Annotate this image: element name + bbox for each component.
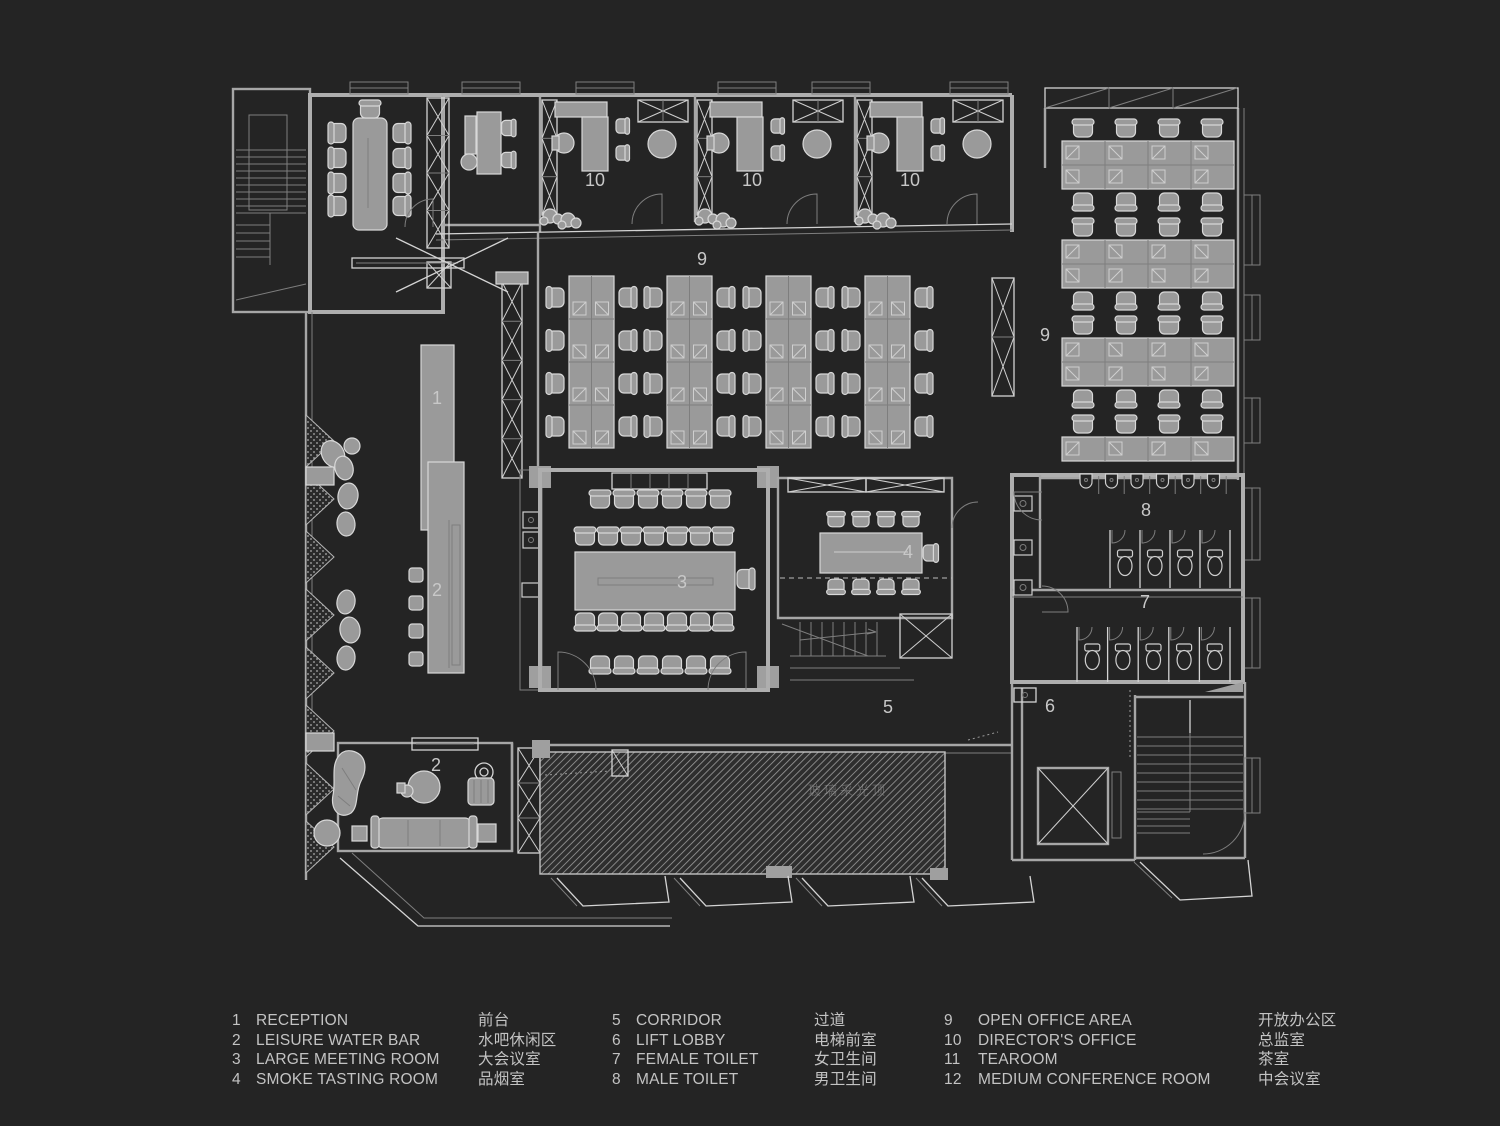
- terrace-watermark: 玻璃采光顶: [808, 783, 888, 798]
- legend-zh: 中会议室: [1258, 1067, 1337, 1089]
- legend-zh: 男卫生间: [814, 1067, 877, 1089]
- legend-en: LARGE MEETING ROOM: [256, 1051, 478, 1069]
- legend-en: CORRIDOR: [636, 1012, 814, 1030]
- room-number-label: 9: [697, 249, 707, 269]
- floor-plan-svg: 12234567899101010玻璃采光顶: [0, 0, 1500, 1126]
- terrace-skylight: [532, 732, 1034, 906]
- legend-num: 10: [944, 1032, 978, 1050]
- floor-plan-page: 12234567899101010玻璃采光顶 1RECEPTION前台2LEIS…: [0, 0, 1500, 1126]
- room-number-label: 8: [1141, 500, 1151, 520]
- legend-column-3: 9OPEN OFFICE AREA开放办公区10DIRECTOR'S OFFIC…: [944, 1008, 1337, 1086]
- legend-en: LIFT LOBBY: [636, 1032, 814, 1050]
- stair-mid: [782, 614, 952, 680]
- room-number-label: 3: [677, 572, 687, 592]
- legend-num: 6: [612, 1032, 636, 1050]
- legend-column-1: 1RECEPTION前台2LEISURE WATER BAR水吧休闲区3LARG…: [232, 1008, 557, 1086]
- legend-en: OPEN OFFICE AREA: [978, 1012, 1258, 1030]
- room-number-label: 10: [742, 170, 762, 190]
- legend-en: MEDIUM CONFERENCE ROOM: [978, 1071, 1258, 1089]
- room-3-large-meeting: [529, 466, 779, 690]
- room-number-label: 10: [900, 170, 920, 190]
- room-11-tearoom: [461, 112, 516, 174]
- legend-num: 4: [232, 1071, 256, 1089]
- room-4-smoke-tasting: [778, 478, 978, 618]
- legend-zh: 品烟室: [478, 1067, 557, 1089]
- legend-en: MALE TOILET: [636, 1071, 814, 1089]
- legend-num: 2: [232, 1032, 256, 1050]
- room-number-label: 2: [432, 580, 442, 600]
- legend-num: 11: [944, 1051, 978, 1069]
- open-office-center-9: [546, 276, 1014, 448]
- room-number-label: 10: [585, 170, 605, 190]
- legend-en: FEMALE TOILET: [636, 1051, 814, 1069]
- stair-bottom-right: [1134, 697, 1252, 900]
- stair-top-left: [236, 115, 306, 300]
- lounge-2: [314, 738, 512, 851]
- room-number-label: 1: [432, 388, 442, 408]
- legend-num: 9: [944, 1012, 978, 1030]
- legend-num: 8: [612, 1071, 636, 1089]
- open-office-right-9: [1040, 108, 1238, 478]
- room-number-label: 2: [431, 755, 441, 775]
- room-number-label: 9: [1040, 325, 1050, 345]
- room-number-label: 6: [1045, 696, 1055, 716]
- room-number-label: 4: [903, 542, 913, 562]
- legend-num: 12: [944, 1071, 978, 1089]
- legend-num: 5: [612, 1012, 636, 1030]
- legend-en: LEISURE WATER BAR: [256, 1032, 478, 1050]
- legend-en: TEAROOM: [978, 1051, 1258, 1069]
- reception-1-waterbar-2: [409, 272, 542, 690]
- legend-num: 1: [232, 1012, 256, 1030]
- legend-en: RECEPTION: [256, 1012, 478, 1030]
- room-number-label: 5: [883, 697, 893, 717]
- toilets-7-8: [1012, 474, 1243, 682]
- legend-column-2: 5CORRIDOR过道6LIFT LOBBY电梯前室7FEMALE TOILET…: [612, 1008, 877, 1086]
- legend-en: SMOKE TASTING ROOM: [256, 1071, 478, 1089]
- legend-en: DIRECTOR'S OFFICE: [978, 1032, 1258, 1050]
- legend-num: 3: [232, 1051, 256, 1069]
- director-offices-10: [540, 100, 1003, 229]
- legend-num: 7: [612, 1051, 636, 1069]
- room-number-label: 7: [1140, 592, 1150, 612]
